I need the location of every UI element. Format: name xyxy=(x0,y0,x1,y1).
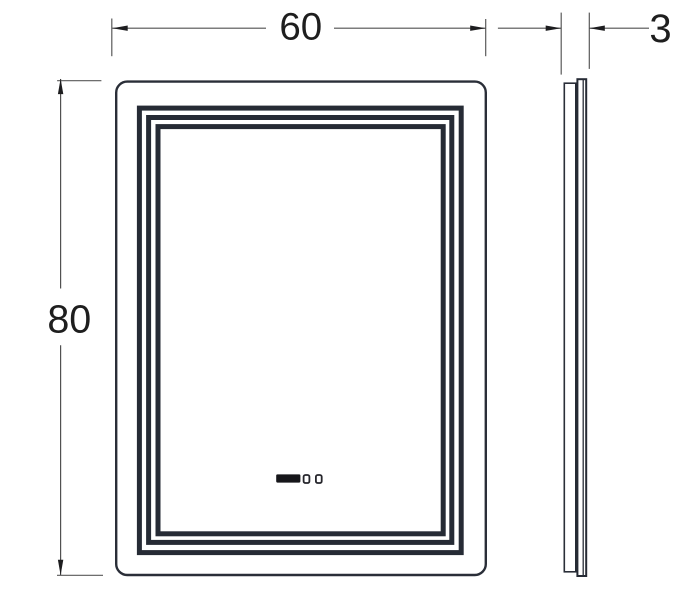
svg-text:80: 80 xyxy=(47,298,91,342)
svg-text:3: 3 xyxy=(649,7,671,51)
svg-text:60: 60 xyxy=(279,6,322,49)
